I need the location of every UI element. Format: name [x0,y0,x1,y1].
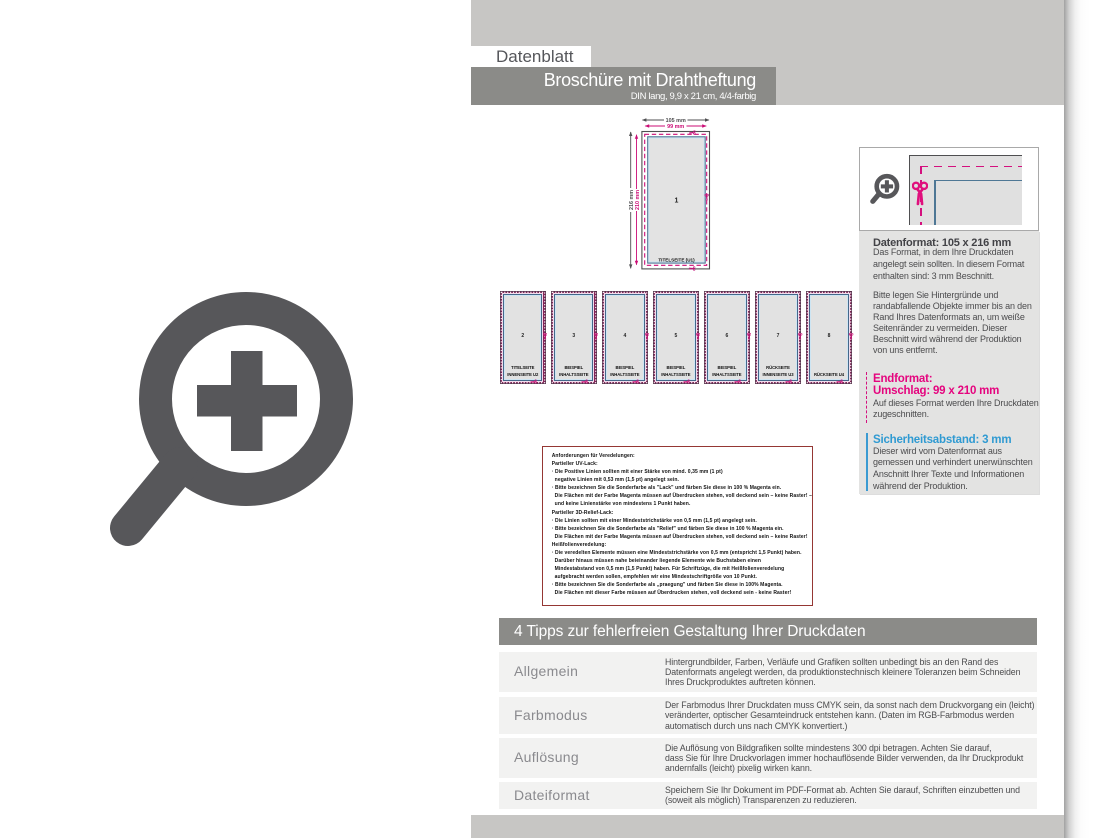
svg-text:99 mm: 99 mm [667,124,684,130]
svg-text:TITELSEITE (U1): TITELSEITE (U1) [658,258,695,263]
svg-text:1: 1 [675,198,679,205]
svg-text:210 mm: 210 mm [635,190,641,210]
